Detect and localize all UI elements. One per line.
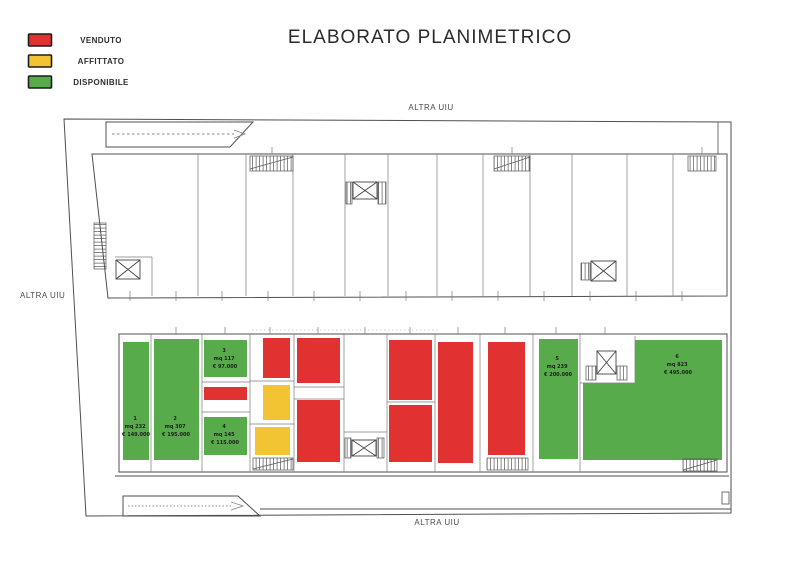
unit-3[interactable]: 3 mq 117 € 97.000 <box>204 340 247 377</box>
unit-2-block <box>154 339 199 460</box>
rented-unit-blocks <box>255 385 290 455</box>
elevator-icon <box>581 261 616 281</box>
unit-1-block <box>123 342 149 460</box>
stairs-icon <box>581 263 590 280</box>
floor-plan: 1 mq 232 € 149.000 2 mq 307 € 195.000 3 … <box>0 0 800 565</box>
sold-unit-block[interactable] <box>297 400 340 462</box>
stairs-icon <box>345 438 351 458</box>
ramp-arrow-icon-bottom <box>128 502 243 510</box>
sold-unit-block[interactable] <box>297 338 340 383</box>
stairs-icon <box>487 458 528 470</box>
elevator-icon <box>116 260 140 279</box>
stairs-icon <box>617 366 627 380</box>
sold-unit-block[interactable] <box>488 342 525 455</box>
sold-unit-block[interactable] <box>438 342 473 463</box>
sold-unit-block[interactable] <box>389 340 432 400</box>
planimetric-drawing: VENDUTO AFFITTATO DISPONIBILE ELABORATO … <box>0 0 800 565</box>
unit-2[interactable]: 2 mq 307 € 195.000 <box>154 339 199 460</box>
sold-unit-block[interactable] <box>263 338 290 378</box>
unit-5[interactable]: 5 mq 239 € 200.000 <box>539 339 578 459</box>
stairs-icon <box>377 438 384 458</box>
stairs-icon <box>586 366 596 380</box>
stairs-icon <box>94 223 106 269</box>
unit-1[interactable]: 1 mq 232 € 149.000 <box>121 342 151 460</box>
stairs-icon <box>494 156 530 171</box>
elevator-icon <box>346 182 386 204</box>
unit-4[interactable]: 4 mq 145 € 115.000 <box>204 417 247 455</box>
sold-unit-block[interactable] <box>204 387 247 400</box>
rented-unit-block[interactable] <box>255 427 290 455</box>
ramp-arrow-icon-top <box>112 130 245 138</box>
elevator-icon <box>345 438 384 458</box>
stairs-icon <box>346 182 352 204</box>
rented-unit-block[interactable] <box>263 385 290 420</box>
stairs-icon <box>378 182 386 204</box>
stairs-icon <box>688 156 716 171</box>
elevator-icon <box>586 351 627 380</box>
sold-unit-block[interactable] <box>389 405 432 462</box>
stairs-icon <box>250 156 293 171</box>
